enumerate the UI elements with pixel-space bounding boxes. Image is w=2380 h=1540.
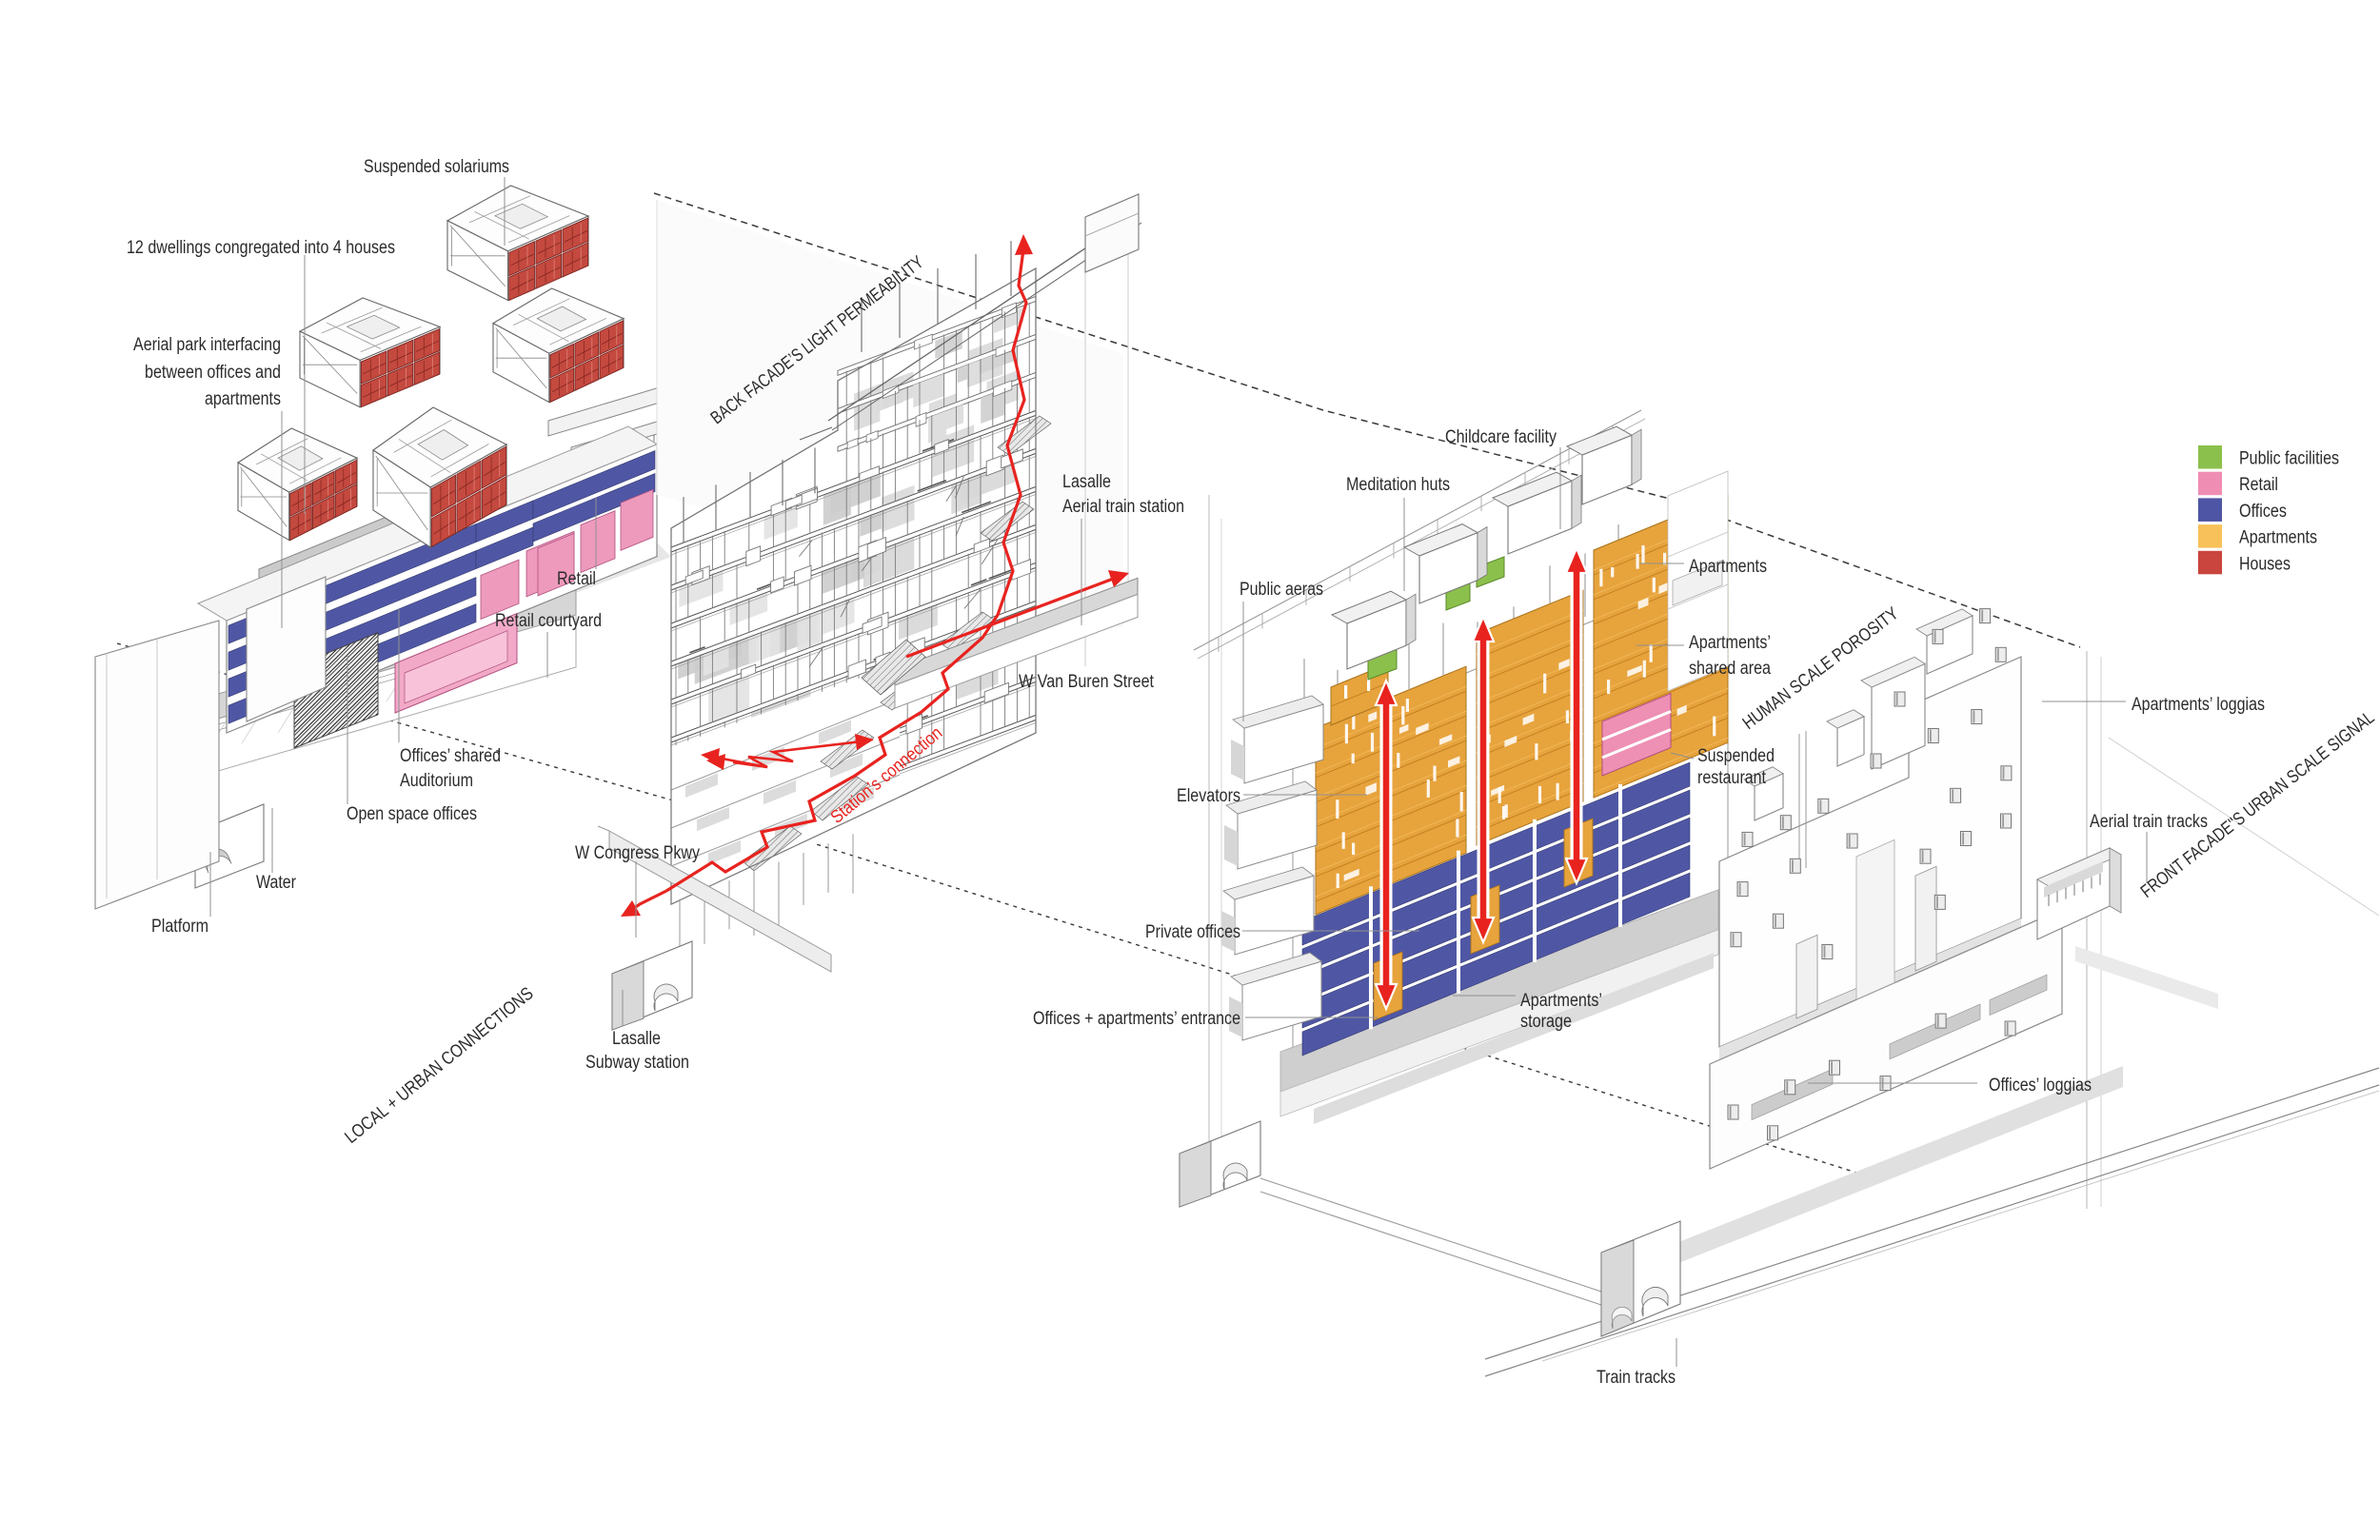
svg-text:Apartments’ loggias: Apartments’ loggias	[2132, 695, 2265, 715]
svg-text:Offices’ loggias: Offices’ loggias	[1989, 1076, 2092, 1096]
svg-text:Apartments: Apartments	[1689, 557, 1767, 577]
svg-text:Public aeras: Public aeras	[1240, 580, 1323, 600]
svg-text:Apartments’: Apartments’	[1520, 991, 1602, 1011]
svg-text:shared area: shared area	[1689, 659, 1771, 679]
svg-text:Elevators: Elevators	[1177, 786, 1240, 806]
svg-text:Subway station: Subway station	[585, 1053, 689, 1073]
svg-text:Meditation huts: Meditation huts	[1346, 475, 1450, 495]
svg-text:Retail: Retail	[557, 569, 596, 589]
svg-text:Suspended: Suspended	[1697, 746, 1775, 766]
svg-text:Open space offices: Open space offices	[347, 804, 477, 824]
svg-text:Train tracks: Train tracks	[1597, 1368, 1676, 1388]
svg-text:between offices and: between offices and	[145, 363, 281, 383]
svg-text:Suspended solariums: Suspended solariums	[364, 157, 509, 177]
svg-text:restaurant: restaurant	[1697, 768, 1767, 788]
svg-text:Offices: Offices	[2239, 502, 2287, 522]
svg-text:Private offices: Private offices	[1145, 922, 1240, 942]
svg-text:Lasalle: Lasalle	[1062, 472, 1111, 492]
svg-text:Offices + apartments’ entrance: Offices + apartments’ entrance	[1033, 1009, 1240, 1029]
svg-text:Houses: Houses	[2239, 554, 2291, 574]
svg-text:Platform: Platform	[151, 917, 208, 937]
svg-text:Offices’ shared: Offices’ shared	[400, 746, 501, 766]
svg-text:Childcare facility: Childcare facility	[1445, 427, 1557, 447]
svg-text:Retail: Retail	[2239, 475, 2278, 495]
svg-text:apartments: apartments	[205, 389, 281, 409]
svg-text:Apartments’: Apartments’	[1689, 633, 1771, 653]
svg-text:Water: Water	[256, 873, 297, 893]
svg-text:Retail courtyard: Retail courtyard	[495, 611, 602, 631]
svg-text:12 dwellings congregated into: 12 dwellings congregated into 4 houses	[127, 238, 395, 258]
svg-text:Lasalle: Lasalle	[612, 1029, 661, 1049]
svg-text:Aerial park interfacing: Aerial park interfacing	[133, 335, 281, 355]
svg-text:Apartments: Apartments	[2239, 528, 2317, 548]
svg-text:storage: storage	[1520, 1012, 1572, 1032]
svg-text:Auditorium: Auditorium	[400, 771, 473, 791]
svg-text:Public facilities: Public facilities	[2239, 449, 2339, 469]
svg-text:W Van Buren Street: W Van Buren Street	[1019, 672, 1155, 692]
svg-text:Aerial train tracks: Aerial train tracks	[2090, 812, 2208, 832]
svg-text:Aerial train station: Aerial train station	[1062, 497, 1184, 517]
svg-text:W Congress Pkwy: W Congress Pkwy	[575, 843, 700, 863]
